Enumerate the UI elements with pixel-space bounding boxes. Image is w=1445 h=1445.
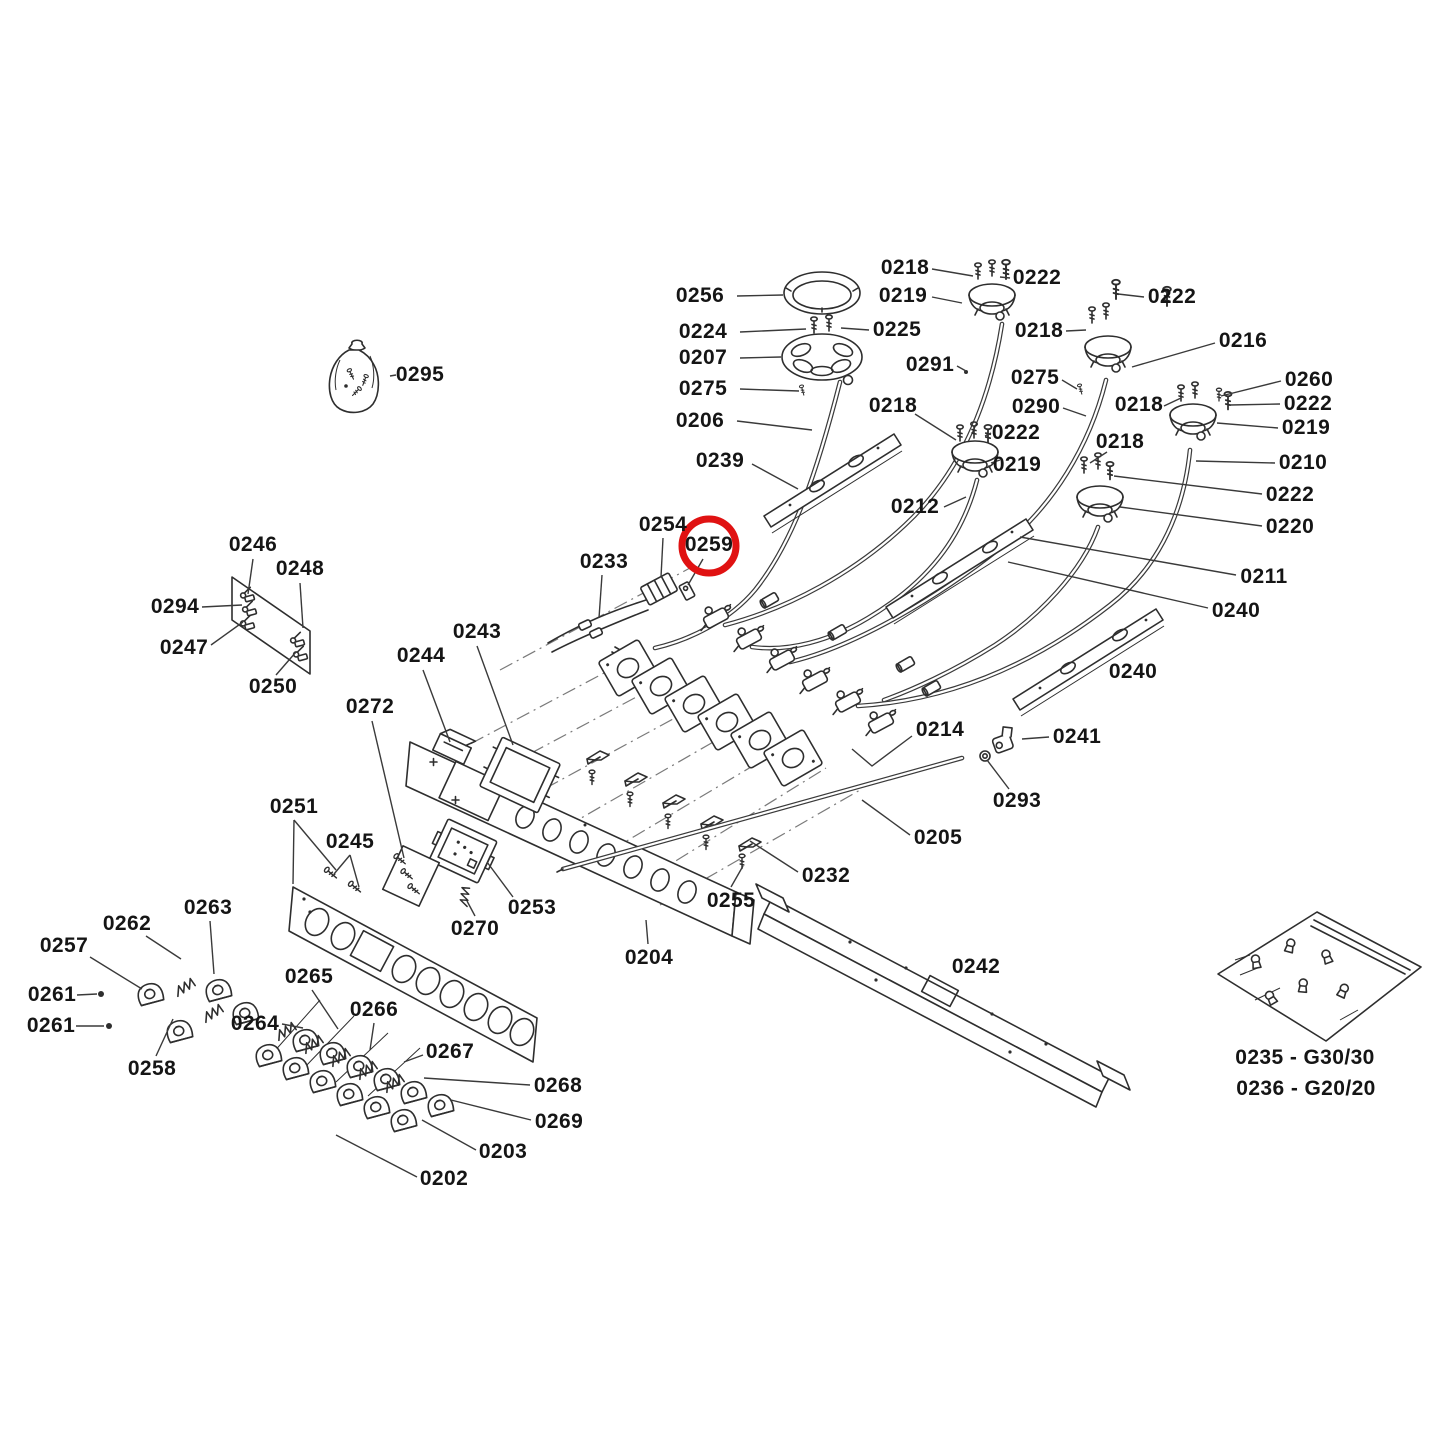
leader-line xyxy=(646,920,648,944)
leader-line xyxy=(991,460,1000,463)
leader-line xyxy=(1063,408,1086,416)
leader-line xyxy=(1221,381,1281,396)
leader-line xyxy=(1008,562,1208,608)
leader-line xyxy=(1062,380,1077,389)
leader-line xyxy=(1217,423,1278,428)
leader-line xyxy=(451,1100,531,1120)
leader-line xyxy=(422,1120,476,1150)
leader-line xyxy=(1020,537,1236,575)
leader-line xyxy=(372,721,404,858)
leader-line xyxy=(1118,294,1144,297)
leader-line xyxy=(90,957,142,989)
leader-line xyxy=(1132,343,1215,367)
leader-line xyxy=(1164,398,1181,406)
leader-line xyxy=(336,1135,417,1177)
leader-line xyxy=(1066,330,1086,331)
leader-line xyxy=(300,583,303,628)
leader-line xyxy=(737,295,783,296)
leader-line xyxy=(752,464,798,489)
leader-line xyxy=(248,559,253,594)
leader-line xyxy=(156,1019,173,1056)
leader-line xyxy=(390,375,396,376)
leader-line xyxy=(293,820,294,884)
leader-line xyxy=(211,622,243,645)
leader-line xyxy=(985,433,991,436)
leader-line xyxy=(731,866,743,887)
leader-line xyxy=(1000,277,1010,278)
leader-line xyxy=(750,841,798,872)
leader-line xyxy=(334,855,350,874)
leader-line xyxy=(1230,404,1280,405)
leader-line xyxy=(146,936,181,959)
leader-line xyxy=(915,414,956,440)
leader-line xyxy=(1120,507,1262,526)
leader-line xyxy=(862,800,910,835)
leader-line xyxy=(944,497,966,507)
leader-line xyxy=(312,990,338,1029)
parts-diagram-canvas: 0256022402070275020602390218021902220225… xyxy=(0,0,1445,1445)
leader-line xyxy=(424,1078,530,1085)
leader-line xyxy=(932,269,973,276)
leader-line xyxy=(987,760,1009,789)
leader-line xyxy=(852,736,912,766)
leader-line xyxy=(370,1023,374,1050)
leader-line xyxy=(404,1055,423,1062)
leader-line xyxy=(77,994,97,995)
leader-line xyxy=(294,820,336,870)
highlight-circle xyxy=(682,519,736,573)
leader-line xyxy=(740,329,806,332)
leader-line xyxy=(202,605,242,607)
leader-line xyxy=(350,855,359,887)
leader-line xyxy=(957,366,966,371)
leader-line xyxy=(1022,737,1049,739)
leader-line xyxy=(423,670,450,742)
leader-line xyxy=(467,901,475,916)
leader-line xyxy=(1114,476,1262,494)
leader-line xyxy=(599,575,602,618)
leader-layer xyxy=(0,0,1445,1445)
leader-line xyxy=(487,862,513,897)
leader-line xyxy=(282,1024,303,1028)
leader-line xyxy=(276,652,296,675)
leader-line xyxy=(740,357,781,358)
leader-line xyxy=(1090,452,1107,463)
leader-line xyxy=(740,389,799,391)
leader-line xyxy=(841,328,869,330)
leader-line xyxy=(210,921,214,974)
leader-line xyxy=(1196,461,1275,463)
leader-line xyxy=(932,297,962,303)
leader-line xyxy=(737,421,812,430)
leader-line xyxy=(477,646,513,745)
leader-line xyxy=(661,538,663,577)
